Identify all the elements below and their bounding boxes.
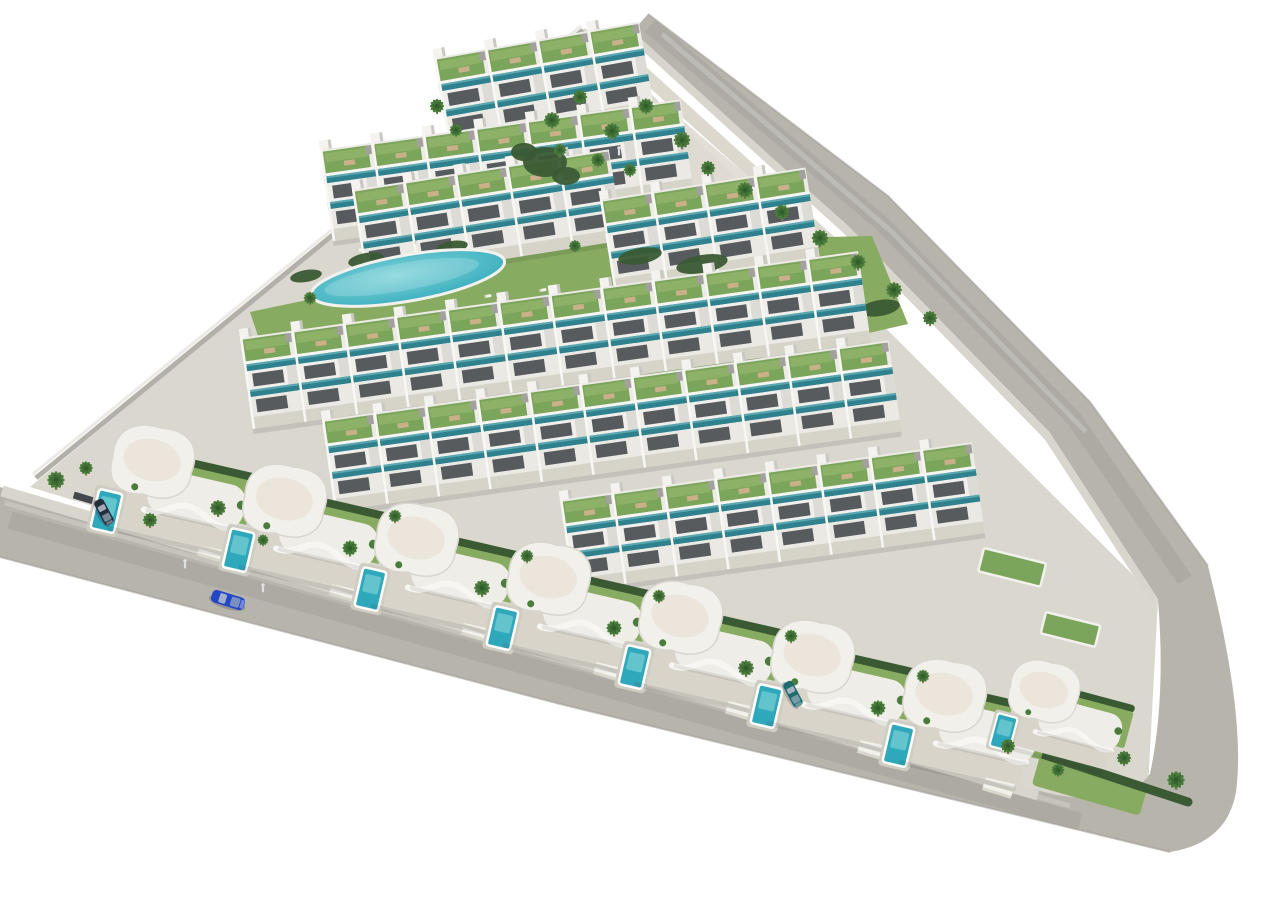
- site-aerial-render: [0, 0, 1280, 907]
- render-canvas: [0, 0, 1280, 907]
- hedge: [552, 167, 580, 185]
- hedge: [511, 143, 537, 161]
